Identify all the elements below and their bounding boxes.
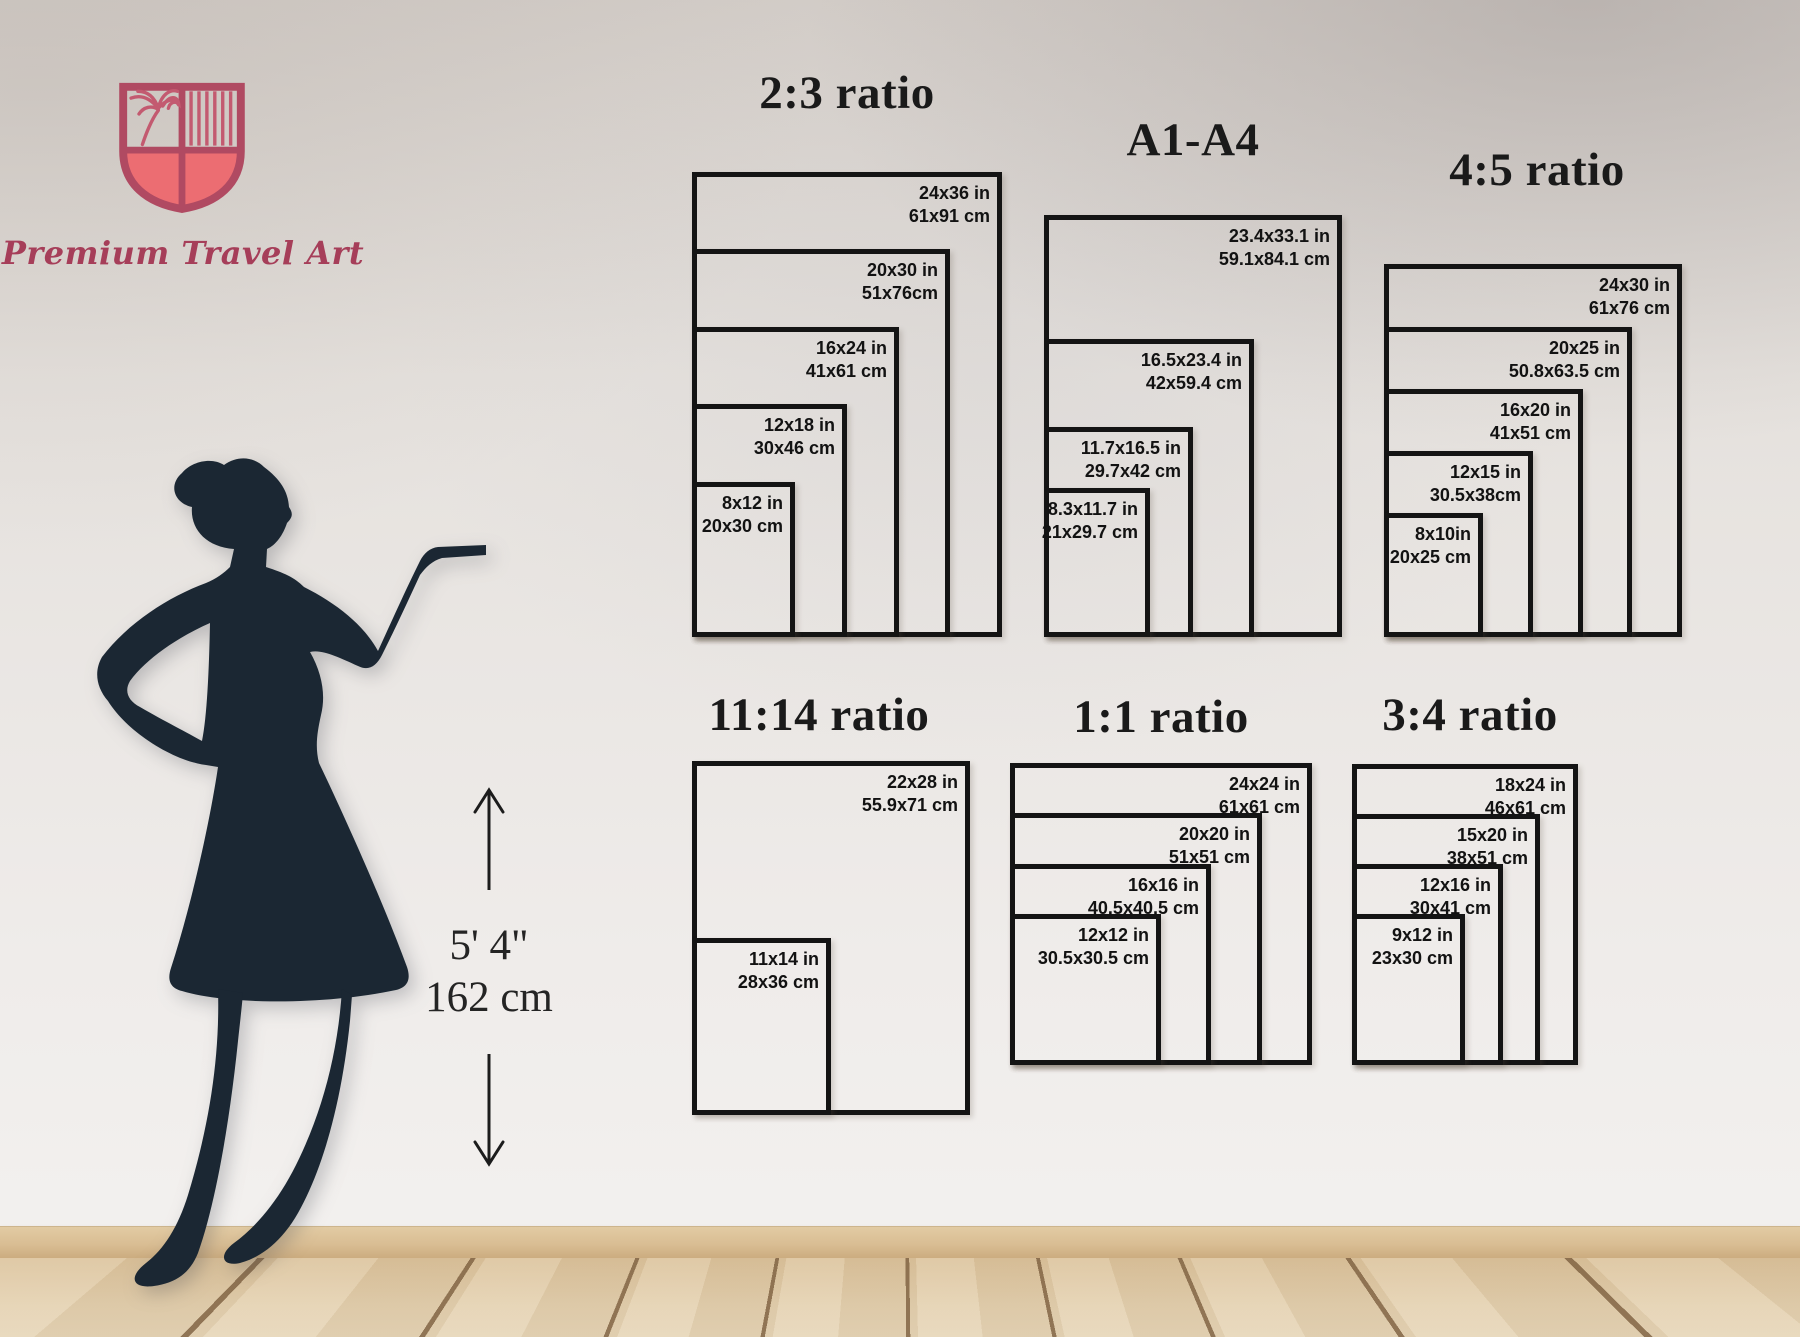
height-feet: 5' 4": [425, 920, 553, 972]
size-cm: 51x76cm: [862, 282, 938, 305]
size-cm: 59.1x84.1 cm: [1219, 248, 1330, 271]
size-label: 8x12 in20x30 cm: [702, 492, 783, 538]
size-inches: 20x20 in: [1169, 823, 1250, 846]
size-label: 8.3x11.7 in21x29.7 cm: [1042, 498, 1138, 544]
size-frame-8x12-in: 8x12 in20x30 cm: [692, 482, 795, 637]
size-frame-8.3x11.7-in: 8.3x11.7 in21x29.7 cm: [1044, 488, 1150, 637]
size-cm: 30.5x30.5 cm: [1038, 947, 1149, 970]
size-inches: 22x28 in: [862, 771, 958, 794]
size-label: 16x20 in41x51 cm: [1490, 399, 1571, 445]
size-cm: 28x36 cm: [738, 971, 819, 994]
size-cm: 30x46 cm: [754, 437, 835, 460]
size-label: 9x12 in23x30 cm: [1372, 924, 1453, 970]
size-label: 24x30 in61x76 cm: [1589, 274, 1670, 320]
size-inches: 9x12 in: [1372, 924, 1453, 947]
brand-name: Premium Travel Art: [2, 234, 364, 272]
size-group-ratio-2-3: 24x36 in61x91 cm20x30 in51x76cm16x24 in4…: [692, 172, 1002, 637]
size-inches: 11x14 in: [738, 948, 819, 971]
group-title-a1-a4: A1-A4: [1126, 113, 1259, 167]
size-inches: 12x15 in: [1430, 461, 1521, 484]
size-inches: 20x25 in: [1509, 337, 1620, 360]
group-title-ratio-2-3: 2:3 ratio: [759, 66, 934, 120]
size-inches: 20x30 in: [862, 259, 938, 282]
size-label: 20x20 in51x51 cm: [1169, 823, 1250, 869]
group-title-ratio-11-14: 11:14 ratio: [709, 688, 930, 742]
size-label: 8x10in20x25 cm: [1390, 523, 1471, 569]
size-inches: 12x18 in: [754, 414, 835, 437]
group-title-ratio-3-4: 3:4 ratio: [1382, 688, 1557, 742]
size-label: 12x18 in30x46 cm: [754, 414, 835, 460]
size-inches: 16.5x23.4 in: [1141, 349, 1242, 372]
height-label: 5' 4" 162 cm: [425, 920, 553, 1025]
size-inches: 16x24 in: [806, 337, 887, 360]
size-cm: 41x51 cm: [1490, 422, 1571, 445]
height-cm: 162 cm: [425, 972, 553, 1024]
size-label: 20x30 in51x76cm: [862, 259, 938, 305]
size-inches: 15x20 in: [1447, 824, 1528, 847]
shield-crest-icon: [113, 78, 251, 220]
size-label: 16.5x23.4 in42x59.4 cm: [1141, 349, 1242, 395]
size-inches: 24x24 in: [1219, 773, 1300, 796]
size-cm: 50.8x63.5 cm: [1509, 360, 1620, 383]
size-label: 12x12 in30.5x30.5 cm: [1038, 924, 1149, 970]
group-title-ratio-1-1: 1:1 ratio: [1073, 690, 1248, 744]
size-cm: 61x91 cm: [909, 205, 990, 228]
size-label: 11x14 in28x36 cm: [738, 948, 819, 994]
size-group-ratio-4-5: 24x30 in61x76 cm20x25 in50.8x63.5 cm16x2…: [1384, 264, 1682, 637]
size-inches: 24x36 in: [909, 182, 990, 205]
size-cm: 30.5x38cm: [1430, 484, 1521, 507]
size-inches: 24x30 in: [1589, 274, 1670, 297]
size-cm: 55.9x71 cm: [862, 794, 958, 817]
size-inches: 16x16 in: [1088, 874, 1199, 897]
size-frame-12x12-in: 12x12 in30.5x30.5 cm: [1010, 914, 1161, 1065]
group-title-ratio-4-5: 4:5 ratio: [1449, 143, 1624, 197]
size-label: 23.4x33.1 in59.1x84.1 cm: [1219, 225, 1330, 271]
size-inches: 11.7x16.5 in: [1081, 437, 1181, 460]
size-inches: 12x16 in: [1410, 874, 1491, 897]
size-label: 22x28 in55.9x71 cm: [862, 771, 958, 817]
size-cm: 29.7x42 cm: [1081, 460, 1181, 483]
size-inches: 18x24 in: [1485, 774, 1566, 797]
poster-scene: Premium Travel Art 5' 4" 162 cm 2:3 rati…: [0, 0, 1800, 1337]
size-inches: 12x12 in: [1038, 924, 1149, 947]
size-frame-8x10in: 8x10in20x25 cm: [1384, 513, 1483, 637]
arrow-down-icon: [469, 1052, 509, 1170]
size-cm: 21x29.7 cm: [1042, 521, 1138, 544]
size-label: 16x24 in41x61 cm: [806, 337, 887, 383]
size-inches: 16x20 in: [1490, 399, 1571, 422]
size-label: 12x15 in30.5x38cm: [1430, 461, 1521, 507]
size-cm: 23x30 cm: [1372, 947, 1453, 970]
size-inches: 23.4x33.1 in: [1219, 225, 1330, 248]
size-cm: 20x30 cm: [702, 515, 783, 538]
size-cm: 42x59.4 cm: [1141, 372, 1242, 395]
brand-logo: [113, 78, 251, 220]
size-group-ratio-3-4: 18x24 in46x61 cm15x20 in38x51 cm12x16 in…: [1352, 764, 1578, 1065]
size-inches: 8.3x11.7 in: [1042, 498, 1138, 521]
size-group-ratio-1-1: 24x24 in61x61 cm20x20 in51x51 cm16x16 in…: [1010, 763, 1312, 1065]
size-cm: 41x61 cm: [806, 360, 887, 383]
size-label: 20x25 in50.8x63.5 cm: [1509, 337, 1620, 383]
size-cm: 61x76 cm: [1589, 297, 1670, 320]
size-inches: 8x10in: [1390, 523, 1471, 546]
woman-silhouette: [70, 455, 490, 1295]
size-group-a1-a4: 23.4x33.1 in59.1x84.1 cm16.5x23.4 in42x5…: [1044, 215, 1342, 637]
size-label: 11.7x16.5 in29.7x42 cm: [1081, 437, 1181, 483]
size-frame-9x12-in: 9x12 in23x30 cm: [1352, 914, 1465, 1065]
size-cm: 20x25 cm: [1390, 546, 1471, 569]
size-group-ratio-11-14: 22x28 in55.9x71 cm11x14 in28x36 cm: [692, 761, 970, 1115]
size-label: 24x36 in61x91 cm: [909, 182, 990, 228]
arrow-up-icon: [469, 784, 509, 892]
size-inches: 8x12 in: [702, 492, 783, 515]
size-frame-11x14-in: 11x14 in28x36 cm: [692, 938, 831, 1115]
